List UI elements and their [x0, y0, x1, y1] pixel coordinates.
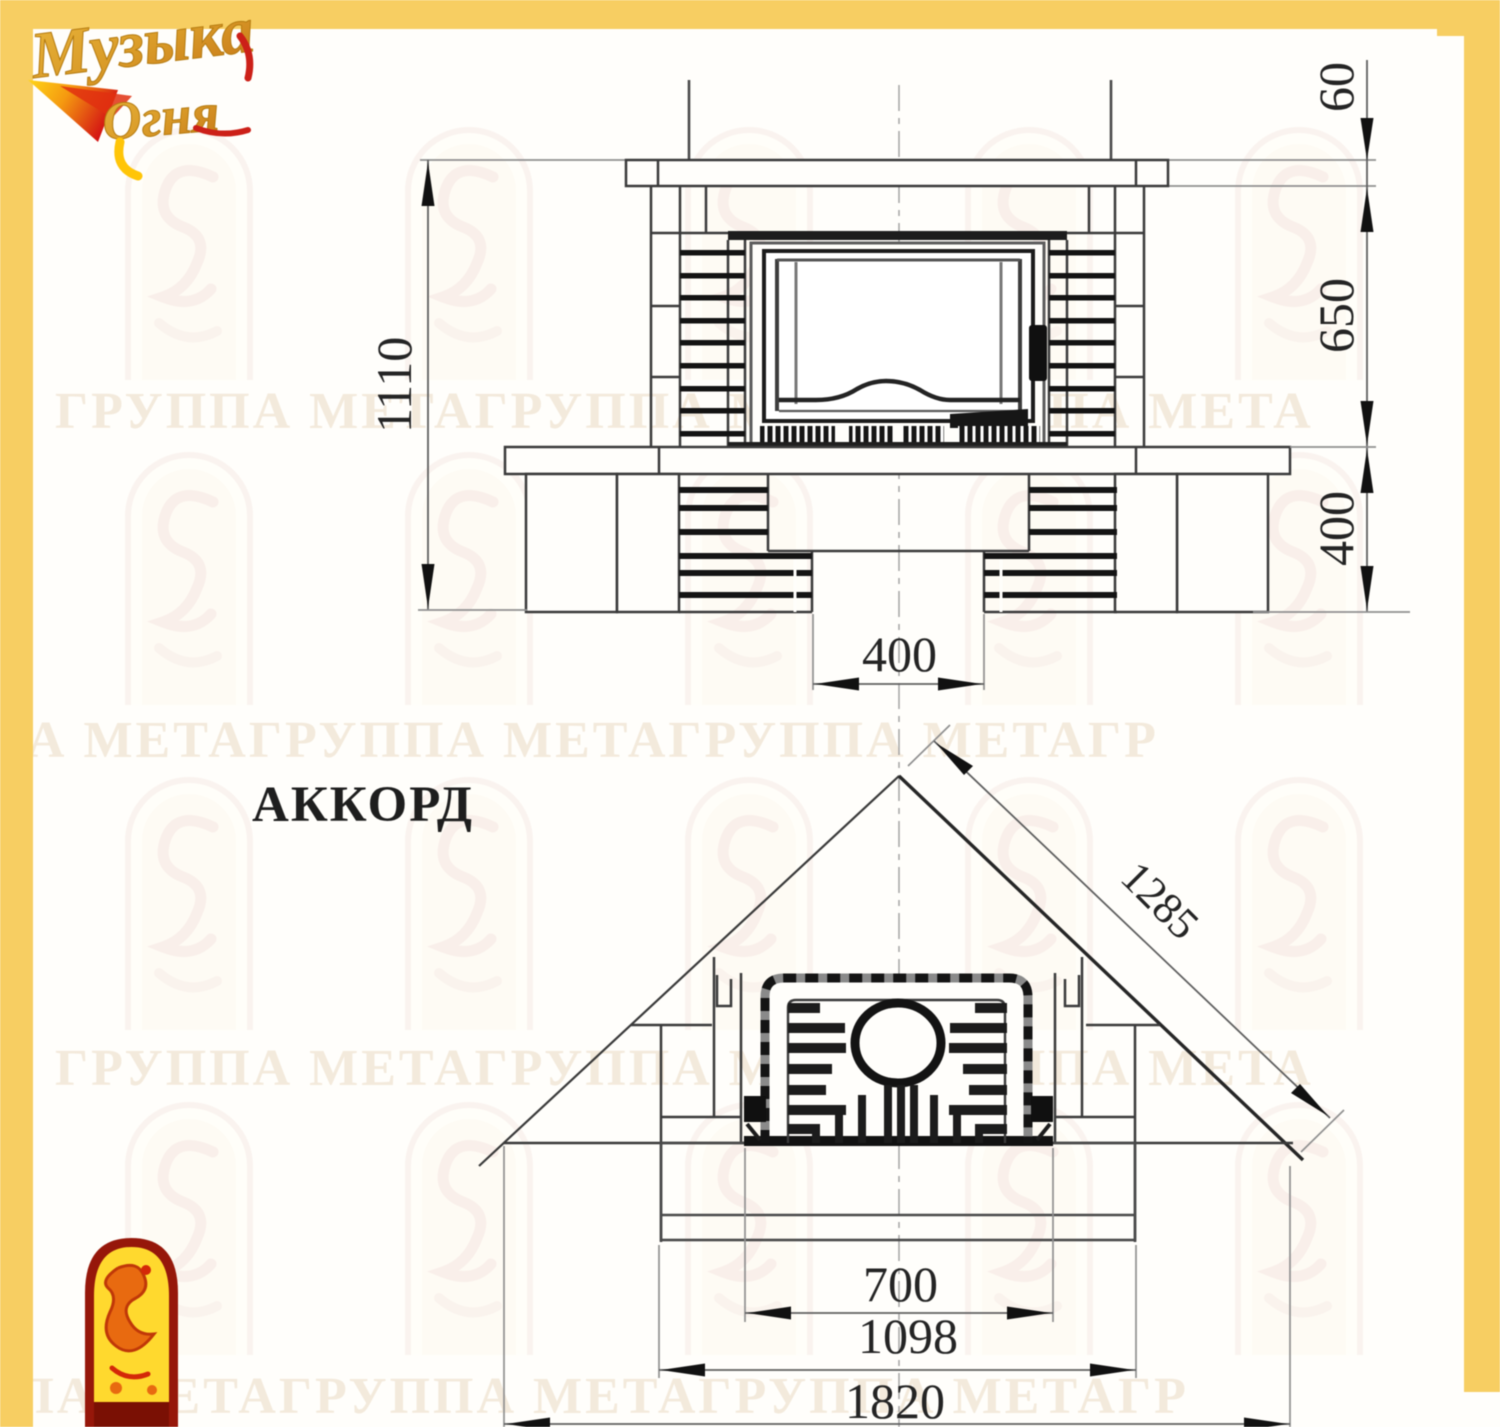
svg-text:60: 60: [1308, 62, 1364, 112]
svg-text:1285: 1285: [1112, 852, 1209, 949]
svg-text:ППА МЕТАГРУППА МЕТАГРУППА МЕТА: ППА МЕТАГРУППА МЕТАГРУППА МЕТАГР: [0, 712, 1159, 769]
svg-text:ГРУППА МЕТАГРУППА МЕТАГРУППА М: ГРУППА МЕТАГРУППА МЕТАГРУППА МЕТА: [55, 1040, 1314, 1097]
svg-text:АККОРД: АККОРД: [252, 777, 474, 833]
svg-text:400: 400: [862, 626, 937, 682]
svg-text:1110: 1110: [366, 337, 422, 433]
svg-text:650: 650: [1308, 278, 1364, 353]
svg-text:1820: 1820: [845, 1373, 945, 1427]
svg-text:700: 700: [863, 1256, 938, 1312]
svg-text:1098: 1098: [858, 1308, 958, 1364]
svg-text:400: 400: [1308, 491, 1364, 566]
svg-text:ППА МЕТАГРУППА МЕТАГРУППА МЕТА: ППА МЕТАГРУППА МЕТАГРУППА МЕТАГР: [0, 1368, 1189, 1425]
